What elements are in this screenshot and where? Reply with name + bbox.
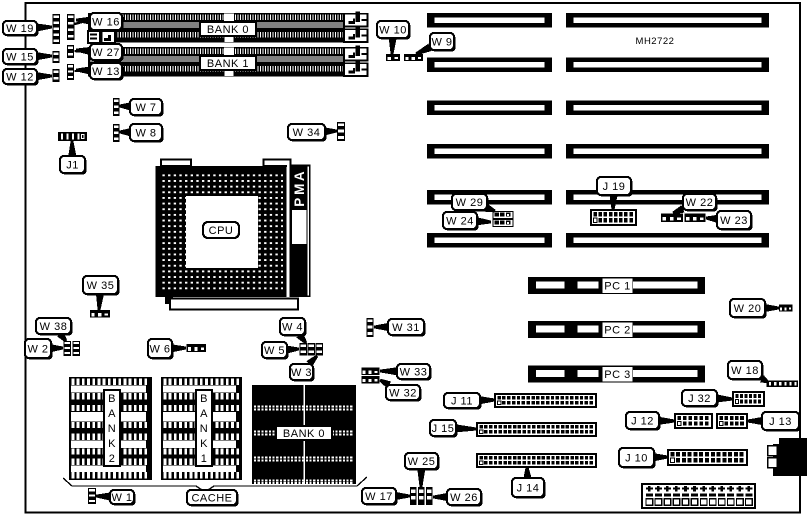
svg-text:W 27: W 27: [92, 47, 120, 59]
svg-text:W 31: W 31: [392, 322, 420, 334]
svg-text:W 6: W 6: [149, 343, 170, 355]
svg-text:J 32: J 32: [688, 393, 711, 405]
svg-text:CPU: CPU: [209, 225, 234, 237]
svg-text:M: M: [292, 183, 307, 195]
svg-text:B: B: [108, 393, 116, 405]
svg-text:W 18: W 18: [731, 365, 759, 377]
svg-text:BANK 1: BANK 1: [207, 58, 249, 70]
svg-text:W 19: W 19: [6, 23, 34, 35]
svg-text:W 7: W 7: [135, 102, 156, 114]
svg-text:B: B: [200, 393, 208, 405]
svg-text:J 13: J 13: [769, 416, 792, 428]
svg-text:W 9: W 9: [431, 36, 452, 48]
svg-text:W 22: W 22: [686, 197, 714, 209]
svg-text:W 35: W 35: [87, 280, 115, 292]
svg-text:W 24: W 24: [446, 215, 474, 227]
svg-text:J 14: J 14: [517, 482, 540, 494]
svg-text:PC 3: PC 3: [604, 369, 630, 381]
svg-text:W 29: W 29: [456, 197, 484, 209]
svg-text:W 4: W 4: [282, 321, 303, 333]
svg-text:PC 2: PC 2: [604, 325, 630, 337]
svg-text:W 10: W 10: [379, 24, 407, 36]
svg-text:MH2722: MH2722: [636, 36, 675, 47]
svg-text:J 12: J 12: [631, 415, 654, 427]
svg-text:J 15: J 15: [432, 423, 455, 435]
svg-text:W 13: W 13: [92, 66, 120, 78]
svg-text:J1: J1: [66, 159, 79, 171]
svg-text:1: 1: [201, 453, 208, 465]
svg-text:2: 2: [109, 453, 116, 465]
svg-text:W 1: W 1: [111, 492, 132, 504]
svg-text:W 2: W 2: [27, 343, 48, 355]
svg-text:J 10: J 10: [625, 452, 648, 464]
svg-text:W 32: W 32: [389, 387, 417, 399]
svg-text:W 38: W 38: [40, 321, 68, 333]
svg-text:PC 1: PC 1: [604, 281, 630, 293]
svg-text:A: A: [292, 171, 307, 181]
svg-text:K: K: [200, 438, 208, 450]
svg-text:W 20: W 20: [734, 303, 762, 315]
svg-text:J 11: J 11: [451, 395, 473, 407]
svg-text:N: N: [108, 423, 116, 435]
svg-text:A: A: [108, 408, 116, 420]
svg-text:W 25: W 25: [408, 456, 436, 468]
svg-text:P: P: [292, 197, 307, 207]
svg-text:N: N: [200, 423, 208, 435]
svg-text:W 17: W 17: [365, 491, 393, 503]
svg-text:W 23: W 23: [720, 215, 748, 227]
svg-text:W 33: W 33: [400, 366, 428, 378]
svg-text:W 5: W 5: [264, 345, 285, 357]
svg-text:W 8: W 8: [135, 127, 156, 139]
svg-text:W 3: W 3: [291, 367, 312, 379]
svg-text:W 34: W 34: [293, 127, 321, 139]
svg-text:CACHE: CACHE: [191, 492, 232, 504]
svg-text:W 16: W 16: [92, 16, 120, 28]
svg-text:W 26: W 26: [450, 492, 478, 504]
svg-text:BANK 0: BANK 0: [207, 24, 249, 36]
svg-text:W 12: W 12: [6, 71, 34, 83]
svg-text:J 19: J 19: [603, 181, 626, 193]
svg-text:A: A: [200, 408, 208, 420]
svg-text:BANK 0: BANK 0: [283, 428, 325, 440]
svg-text:W 15: W 15: [6, 51, 34, 63]
svg-text:K: K: [108, 438, 116, 450]
